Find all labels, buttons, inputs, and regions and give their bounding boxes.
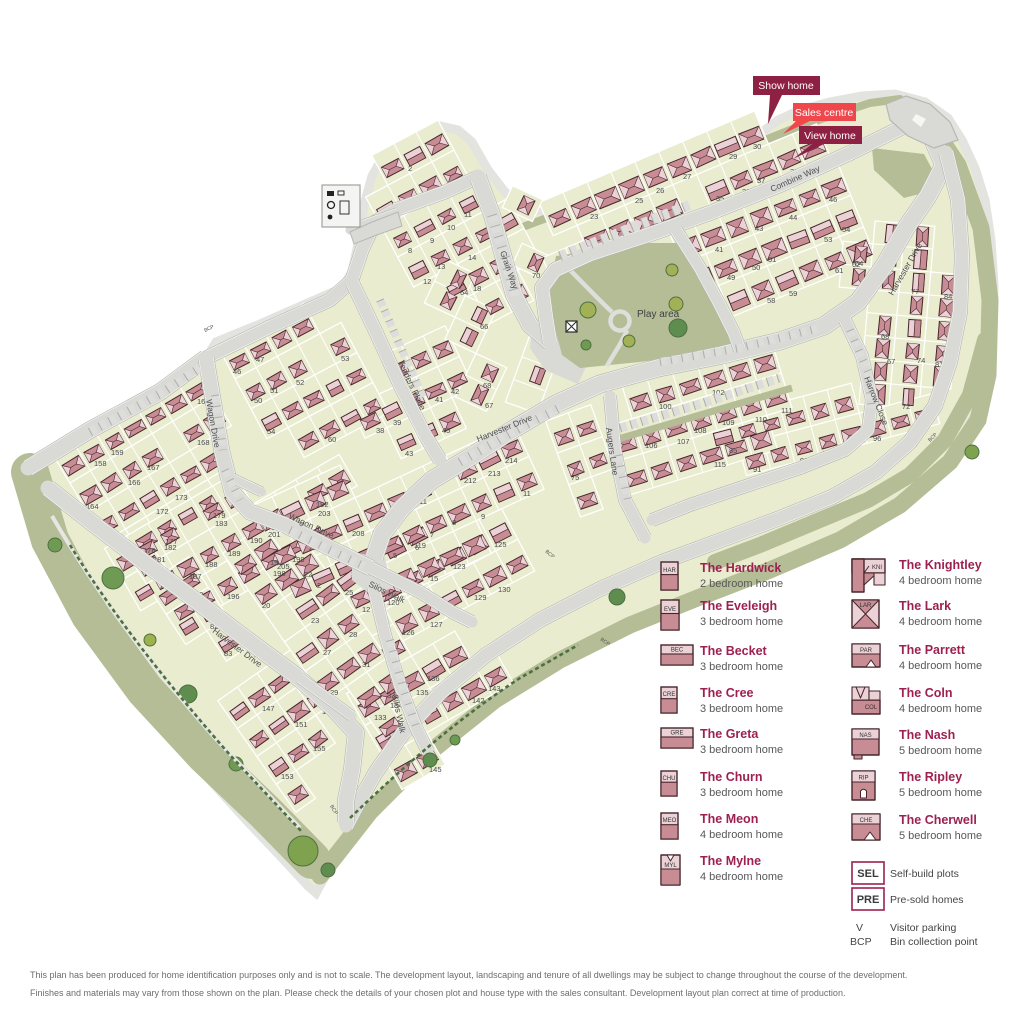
svg-text:126: 126 (402, 628, 415, 637)
svg-text:PAR: PAR (860, 648, 873, 654)
svg-text:SEL: SEL (857, 868, 879, 880)
svg-text:130: 130 (498, 585, 511, 594)
svg-text:12: 12 (362, 605, 370, 614)
svg-text:187: 187 (189, 572, 202, 581)
svg-text:127: 127 (430, 620, 443, 629)
svg-text:107: 107 (677, 437, 690, 446)
svg-text:The Cree: The Cree (700, 686, 754, 700)
svg-text:3 bedroom home: 3 bedroom home (700, 787, 783, 799)
svg-text:110: 110 (755, 415, 767, 424)
svg-text:70: 70 (532, 271, 540, 280)
svg-text:11: 11 (523, 489, 531, 498)
svg-text:The Becket: The Becket (700, 644, 768, 658)
svg-text:54: 54 (267, 427, 275, 436)
svg-text:Bin collection point: Bin collection point (890, 936, 978, 948)
svg-text:58: 58 (767, 296, 775, 305)
svg-text:46: 46 (829, 195, 837, 204)
svg-text:19: 19 (270, 558, 278, 567)
svg-text:192: 192 (316, 500, 329, 509)
svg-text:172: 172 (156, 507, 169, 516)
svg-text:183: 183 (215, 519, 228, 528)
svg-text:The Greta: The Greta (700, 727, 759, 741)
svg-text:4 bedroom home: 4 bedroom home (700, 829, 783, 841)
svg-text:52: 52 (296, 378, 304, 387)
svg-text:100: 100 (659, 402, 672, 411)
svg-text:20: 20 (262, 601, 270, 610)
svg-text:Self-build plots: Self-build plots (890, 868, 959, 880)
svg-text:25: 25 (345, 588, 353, 597)
svg-text:29: 29 (729, 152, 737, 161)
svg-text:106: 106 (645, 441, 658, 450)
svg-text:2 bedroom home: 2 bedroom home (700, 578, 783, 590)
svg-text:The Meon: The Meon (700, 812, 758, 826)
svg-text:28: 28 (349, 630, 357, 639)
svg-text:The Lark: The Lark (899, 599, 951, 613)
svg-text:Pre-sold homes: Pre-sold homes (890, 894, 964, 906)
svg-text:111: 111 (781, 406, 792, 415)
svg-text:31: 31 (362, 660, 370, 669)
svg-text:Visitor parking: Visitor parking (890, 922, 956, 934)
svg-text:8: 8 (452, 518, 456, 527)
svg-text:23: 23 (590, 212, 598, 221)
svg-text:136: 136 (427, 674, 440, 683)
svg-text:68: 68 (483, 381, 491, 390)
svg-text:159: 159 (111, 448, 124, 457)
svg-text:23: 23 (311, 616, 319, 625)
svg-text:50: 50 (752, 263, 760, 272)
svg-text:45: 45 (442, 426, 450, 435)
svg-text:The Mylne: The Mylne (700, 854, 761, 868)
svg-text:HAR: HAR (663, 568, 676, 574)
svg-text:74: 74 (917, 356, 925, 365)
svg-text:The Ripley: The Ripley (899, 770, 962, 784)
svg-text:68: 68 (881, 332, 889, 341)
svg-text:CHE: CHE (860, 818, 873, 824)
svg-text:The Hardwick: The Hardwick (700, 561, 781, 575)
svg-text:167: 167 (147, 463, 160, 472)
svg-text:4 bedroom home: 4 bedroom home (899, 616, 982, 628)
svg-text:199: 199 (292, 555, 305, 564)
svg-text:83: 83 (224, 649, 232, 658)
svg-text:Sales centre: Sales centre (795, 107, 854, 119)
svg-text:27: 27 (683, 172, 691, 181)
svg-text:The Churn: The Churn (700, 770, 763, 784)
svg-text:2: 2 (317, 581, 321, 590)
svg-text:54: 54 (842, 225, 850, 234)
svg-text:15: 15 (430, 574, 438, 583)
svg-text:39: 39 (393, 418, 401, 427)
svg-text:155: 155 (313, 744, 326, 753)
svg-text:43: 43 (755, 224, 763, 233)
svg-text:10: 10 (447, 223, 455, 232)
svg-text:NAS: NAS (859, 733, 871, 739)
svg-text:205: 205 (277, 562, 290, 571)
svg-text:77: 77 (911, 287, 919, 296)
svg-text:4 bedroom home: 4 bedroom home (899, 575, 982, 587)
svg-text:5 bedroom home: 5 bedroom home (899, 787, 982, 799)
svg-text:143: 143 (488, 684, 501, 693)
svg-text:V: V (856, 922, 863, 934)
svg-text:Finishes and materials may var: Finishes and materials may vary from tho… (30, 988, 845, 998)
svg-text:85: 85 (729, 446, 737, 455)
svg-text:38: 38 (376, 426, 384, 435)
svg-text:3 bedroom home: 3 bedroom home (700, 616, 783, 628)
svg-text:189: 189 (228, 549, 241, 558)
svg-text:67: 67 (485, 401, 493, 410)
svg-text:59: 59 (789, 289, 797, 298)
svg-text:5: 5 (393, 551, 397, 560)
svg-text:RIP: RIP (858, 776, 868, 782)
svg-text:213: 213 (488, 469, 501, 478)
svg-text:153: 153 (281, 772, 294, 781)
svg-text:8: 8 (408, 246, 412, 255)
svg-text:72: 72 (902, 402, 910, 411)
svg-text:11: 11 (464, 210, 472, 219)
svg-text:123: 123 (453, 562, 466, 571)
svg-text:BEC: BEC (671, 648, 684, 654)
svg-text:GRE: GRE (670, 731, 683, 737)
svg-text:129: 129 (474, 593, 487, 602)
svg-text:The Cherwell: The Cherwell (899, 813, 977, 827)
svg-text:3 bedroom home: 3 bedroom home (700, 744, 783, 756)
svg-text:158: 158 (94, 459, 107, 468)
svg-text:PRE: PRE (857, 894, 880, 906)
svg-text:41: 41 (715, 245, 723, 254)
svg-text:115: 115 (714, 460, 726, 469)
svg-text:147: 147 (262, 704, 275, 713)
svg-text:5 bedroom home: 5 bedroom home (899, 745, 982, 757)
svg-text:125: 125 (494, 540, 507, 549)
svg-text:The Nash: The Nash (899, 728, 955, 742)
svg-text:4 bedroom home: 4 bedroom home (899, 660, 982, 672)
svg-text:133: 133 (374, 713, 387, 722)
svg-text:9: 9 (481, 512, 485, 521)
svg-text:The Coln: The Coln (899, 686, 952, 700)
svg-text:51: 51 (768, 255, 776, 264)
svg-text:44: 44 (789, 213, 797, 222)
svg-text:49: 49 (727, 273, 735, 282)
svg-text:KNI: KNI (872, 565, 882, 571)
svg-text:53: 53 (824, 235, 832, 244)
svg-text:18: 18 (473, 284, 481, 293)
svg-text:166: 166 (128, 478, 141, 487)
svg-text:4 bedroom home: 4 bedroom home (899, 703, 982, 715)
svg-text:25: 25 (635, 196, 643, 205)
svg-text:26: 26 (656, 186, 664, 195)
svg-text:91: 91 (753, 465, 761, 474)
svg-text:EVE: EVE (664, 607, 676, 613)
svg-text:212: 212 (464, 476, 477, 485)
svg-text:67: 67 (887, 357, 895, 366)
svg-text:47: 47 (256, 355, 264, 364)
svg-text:75: 75 (571, 473, 579, 482)
svg-text:190: 190 (250, 536, 263, 545)
svg-text:MYL: MYL (664, 863, 677, 869)
svg-text:The Eveleigh: The Eveleigh (700, 599, 777, 613)
svg-text:42: 42 (451, 387, 459, 396)
svg-text:3 bedroom home: 3 bedroom home (700, 661, 783, 673)
svg-text:The Knightley: The Knightley (899, 558, 982, 572)
svg-text:96: 96 (873, 434, 881, 443)
svg-text:LAR: LAR (860, 603, 872, 609)
svg-text:108: 108 (694, 426, 707, 435)
svg-text:196: 196 (227, 592, 240, 601)
svg-text:27: 27 (323, 648, 331, 657)
svg-text:109: 109 (722, 418, 735, 427)
svg-text:MEO: MEO (663, 818, 677, 824)
svg-text:View home: View home (804, 130, 856, 142)
svg-text:7: 7 (430, 530, 434, 539)
svg-text:14: 14 (468, 253, 476, 262)
svg-text:The Parrett: The Parrett (899, 643, 966, 657)
svg-text:61: 61 (835, 266, 843, 275)
svg-text:64: 64 (855, 259, 863, 268)
svg-text:BCP: BCP (850, 936, 872, 948)
svg-text:208: 208 (352, 529, 365, 538)
svg-text:50: 50 (254, 396, 262, 405)
svg-text:151: 151 (295, 720, 308, 729)
svg-text:135: 135 (416, 688, 429, 697)
svg-text:66: 66 (480, 322, 488, 331)
svg-text:12: 12 (423, 277, 431, 286)
svg-text:64: 64 (460, 288, 468, 297)
svg-text:CRE: CRE (663, 692, 676, 698)
svg-text:Show home: Show home (758, 80, 814, 92)
svg-text:COL: COL (865, 705, 878, 711)
svg-text:60: 60 (328, 435, 336, 444)
svg-text:53: 53 (341, 354, 349, 363)
svg-text:13: 13 (437, 262, 445, 271)
svg-text:43: 43 (405, 449, 413, 458)
svg-text:214: 214 (505, 456, 518, 465)
svg-text:41: 41 (435, 395, 443, 404)
svg-text:CHU: CHU (663, 776, 676, 782)
svg-text:46: 46 (233, 367, 241, 376)
svg-text:203: 203 (318, 509, 331, 518)
svg-text:2: 2 (408, 164, 412, 173)
svg-text:182: 182 (164, 543, 177, 552)
svg-text:22: 22 (304, 570, 312, 579)
svg-text:This plan has been produced fo: This plan has been produced for home ide… (30, 970, 907, 980)
svg-text:5 bedroom home: 5 bedroom home (899, 830, 982, 842)
svg-text:168: 168 (197, 438, 210, 447)
svg-text:6: 6 (415, 543, 419, 552)
svg-text:173: 173 (175, 493, 188, 502)
svg-text:9: 9 (430, 236, 434, 245)
svg-text:84: 84 (944, 292, 952, 301)
svg-text:4 bedroom home: 4 bedroom home (700, 871, 783, 883)
svg-text:30: 30 (753, 142, 761, 151)
svg-text:188: 188 (205, 560, 218, 569)
svg-text:51: 51 (270, 386, 278, 395)
svg-text:3 bedroom home: 3 bedroom home (700, 703, 783, 715)
